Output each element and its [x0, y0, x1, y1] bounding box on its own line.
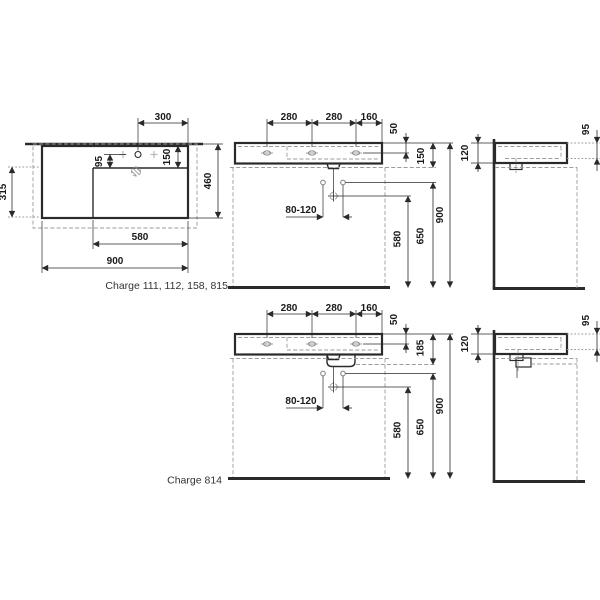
dim-ft-280a: 280 [281, 112, 298, 123]
dim-fb-900: 900 [435, 397, 446, 414]
dim-plan-315: 315 [0, 183, 9, 200]
dim-plan-900: 900 [107, 256, 124, 267]
dim-fb-280a: 280 [281, 303, 298, 314]
dim-ft-280b: 280 [326, 112, 343, 123]
dim-ft-80-120: 80-120 [285, 205, 317, 216]
dim-ft-150: 150 [416, 147, 427, 164]
dim-ft-50: 50 [389, 123, 400, 135]
dim-fb-160: 160 [361, 303, 378, 314]
dim-fb-650: 650 [416, 418, 427, 435]
dim-ft-160: 160 [361, 112, 378, 123]
dim-fb-50: 50 [389, 314, 400, 326]
dim-fb-580: 580 [393, 421, 404, 438]
variant-label-bottom: Charge 814 [167, 475, 222, 487]
dim-sb-95: 95 [581, 315, 592, 327]
dim-st-120: 120 [460, 144, 471, 161]
dim-ft-900: 900 [435, 206, 446, 223]
dim-ft-650: 650 [416, 227, 427, 244]
variant-label-top: Charge 111, 112, 158, 815 [105, 280, 228, 292]
dim-plan-95: 95 [94, 156, 105, 168]
dim-fb-185: 185 [416, 339, 427, 356]
background [0, 0, 600, 600]
dim-ft-580: 580 [393, 230, 404, 247]
dim-fb-280b: 280 [326, 303, 343, 314]
dim-plan-460: 460 [203, 172, 214, 189]
dim-plan-150: 150 [162, 148, 173, 165]
dim-sb-120: 120 [460, 335, 471, 352]
technical-drawing-page: 300 150 95 460 315 580 900 Charge 111, 1… [0, 0, 600, 600]
dim-st-95: 95 [581, 124, 592, 136]
dim-plan-580: 580 [132, 232, 149, 243]
dim-plan-300: 300 [155, 112, 172, 123]
dim-fb-80-120: 80-120 [285, 396, 317, 407]
washbasin-dimension-drawing: 300 150 95 460 315 580 900 Charge 111, 1… [0, 0, 600, 600]
